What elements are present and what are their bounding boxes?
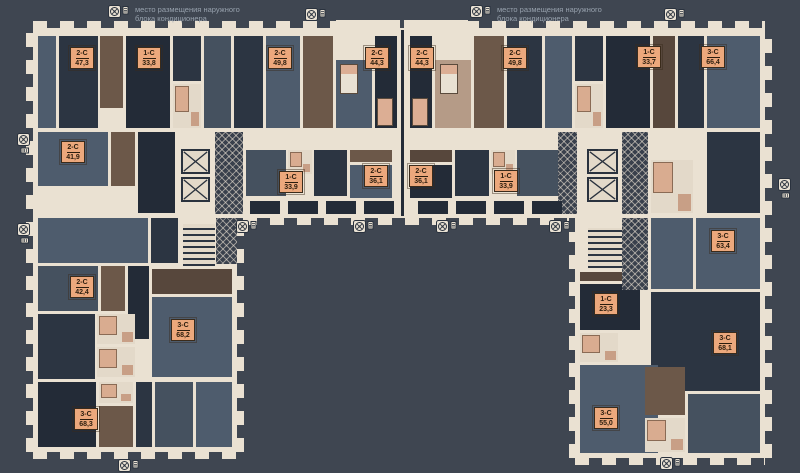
room [38,218,148,263]
room [303,36,333,128]
room [173,36,201,81]
unit-area: 66,4 [706,59,720,66]
unit-code: 1-С [285,174,296,181]
room [38,36,56,128]
expansion-joint-line [401,30,404,216]
unit-code: 2-С [370,168,381,175]
unit-label[interactable]: 3-С55,0 [594,407,618,429]
room [474,36,504,128]
corridor-hatch [622,218,648,290]
room [138,132,175,213]
staircase [586,226,624,270]
ac-unit-icon [108,5,129,23]
window-band [765,28,772,458]
room [97,347,135,377]
unit-label[interactable]: 1-С33,8 [137,47,161,69]
unit-code: 3-С [717,233,728,240]
unit-area: 63,4 [716,243,730,250]
floor-plan: место размещения наружного блока кондици… [0,0,800,473]
unit-code: 2-С [371,50,382,57]
window-band [237,232,244,452]
elevator-shaft [181,177,210,202]
elevator-shaft [181,149,210,174]
unit-label[interactable]: 2-С36,1 [409,165,433,187]
balcony-inset [326,201,356,214]
unit-code: 1-С [143,50,154,57]
unit-divider [274,58,287,59]
unit-divider [76,287,89,288]
unit-divider [67,152,80,153]
ac-unit-icon [118,459,139,472]
elevator-x-icon [589,151,616,172]
corridor-hatch [216,218,237,264]
room [234,36,263,128]
unit-divider [143,58,156,59]
unit-area: 44,3 [370,60,384,67]
room [517,150,558,196]
room [580,333,618,362]
ac-unit-icon [549,220,570,233]
room [350,150,392,162]
ac-unit-icon [305,8,326,21]
window-band [33,452,237,459]
unit-area: 44,3 [415,60,429,67]
room [651,160,693,213]
unit-area: 68,3 [79,421,93,428]
unit-label[interactable]: 3-С66,4 [701,46,725,68]
room [314,150,347,196]
unit-divider [177,330,190,331]
unit-area: 47,3 [75,60,89,67]
unit-code: 2-С [415,168,426,175]
unit-divider [600,418,613,419]
elevator-x-icon [183,151,208,172]
unit-divider [371,58,384,59]
room [645,367,685,415]
unit-code: 2-С [274,50,285,57]
balcony-inset [494,201,524,214]
unit-divider [285,182,298,183]
ac-unit-icon [660,457,681,470]
unit-code: 2-С [76,279,87,286]
unit-label[interactable]: 3-С68,3 [74,408,98,430]
unit-divider [80,419,93,420]
unit-area: 41,9 [66,154,80,161]
unit-area: 33,9 [499,183,513,190]
unit-area: 68,1 [718,345,732,352]
unit-label[interactable]: 2-С49,8 [268,47,292,69]
unit-label[interactable]: 2-С44,3 [365,47,389,69]
unit-code: 2-С [76,50,87,57]
bed [440,64,458,94]
unit-divider [643,57,656,58]
room [651,218,693,289]
unit-label[interactable]: 3-С68,1 [713,332,737,354]
unit-area: 33,7 [642,59,656,66]
kitchen [412,98,428,126]
room [196,382,232,447]
room [38,314,95,379]
ac-unit-icon [664,8,685,21]
room [151,218,178,263]
unit-divider [707,57,720,58]
unit-divider [500,181,513,182]
room [575,84,603,128]
balcony-inset [456,201,486,214]
room [204,36,231,128]
unit-label[interactable]: 1-С23,3 [594,293,618,315]
room [173,84,201,128]
unit-code: 2-С [416,50,427,57]
unit-label[interactable]: 1-С33,7 [637,46,661,68]
corridor-hatch [622,132,648,214]
unit-area: 33,9 [284,184,298,191]
elevator-shaft [587,149,618,174]
unit-divider [416,58,429,59]
unit-area: 36,1 [414,178,428,185]
unit-label[interactable]: 2-С36,1 [364,165,388,187]
room [688,394,760,453]
room [455,150,489,196]
room [111,132,135,186]
unit-label[interactable]: 3-С68,2 [171,319,195,341]
unit-area: 33,8 [142,60,156,67]
room [152,269,232,294]
room [100,36,123,108]
unit-divider [719,343,732,344]
window-band [243,218,569,225]
elevator-x-icon [183,179,208,200]
unit-area: 68,2 [176,332,190,339]
balcony-inset [532,201,562,214]
window-band [569,232,576,458]
legend: место размещения наружного блока кондици… [108,5,240,23]
unit-code: 3-С [80,411,91,418]
unit-code: 2-С [67,144,78,151]
room [545,36,572,128]
unit-divider [76,58,89,59]
ac-unit-icon [778,178,791,199]
staircase [181,222,217,268]
unit-divider [600,304,613,305]
unit-area: 42,4 [75,289,89,296]
elevator-x-icon [589,179,616,200]
legend: место размещения наружного блока кондици… [470,5,602,23]
unit-area: 49,8 [273,60,287,67]
unit-label[interactable]: 3-С63,4 [711,230,735,252]
room [99,406,133,447]
unit-label[interactable]: 2-С41,9 [61,141,85,163]
room [696,218,760,289]
balcony-inset [250,201,280,214]
room [155,382,193,447]
room [575,36,603,81]
unit-code: 1-С [500,173,511,180]
room [136,382,152,447]
unit-code: 3-С [600,410,611,417]
room [645,418,685,452]
balcony-inset [418,201,448,214]
unit-divider [415,176,428,177]
room [101,266,125,311]
unit-label[interactable]: 2-С49,8 [503,47,527,69]
ac-unit-icon [17,133,30,154]
corridor-hatch [215,132,243,214]
unit-label[interactable]: 2-С42,4 [70,276,94,298]
ac-unit-icon [436,220,457,233]
unit-code: 1-С [600,296,611,303]
kitchen [377,98,393,126]
unit-code: 1-С [643,49,654,56]
unit-code: 3-С [719,335,730,342]
unit-divider [509,58,522,59]
balcony-inset [288,201,318,214]
unit-area: 55,0 [599,420,613,427]
unit-label[interactable]: 1-С33,9 [279,171,303,193]
unit-area: 36,1 [369,178,383,185]
room [99,382,133,403]
room [97,314,135,344]
unit-code: 2-С [509,50,520,57]
unit-label[interactable]: 2-С47,3 [70,47,94,69]
ac-unit-icon [236,220,257,233]
room [707,132,760,213]
legend-text: место размещения наружного блока кондици… [497,5,602,23]
unit-divider [717,241,730,242]
ac-unit-icon [470,5,491,23]
room [410,150,452,162]
legend-text: место размещения наружного блока кондици… [135,5,240,23]
unit-label[interactable]: 1-С33,9 [494,170,518,192]
unit-area: 49,8 [508,60,522,67]
unit-divider [370,176,383,177]
ac-unit-icon [17,223,30,244]
unit-code: 3-С [177,322,188,329]
unit-area: 23,3 [599,306,613,313]
unit-label[interactable]: 2-С44,3 [410,47,434,69]
bed [340,64,358,94]
balcony-inset [364,201,394,214]
elevator-shaft [587,177,618,202]
unit-code: 3-С [707,49,718,56]
ac-unit-icon [353,220,374,233]
